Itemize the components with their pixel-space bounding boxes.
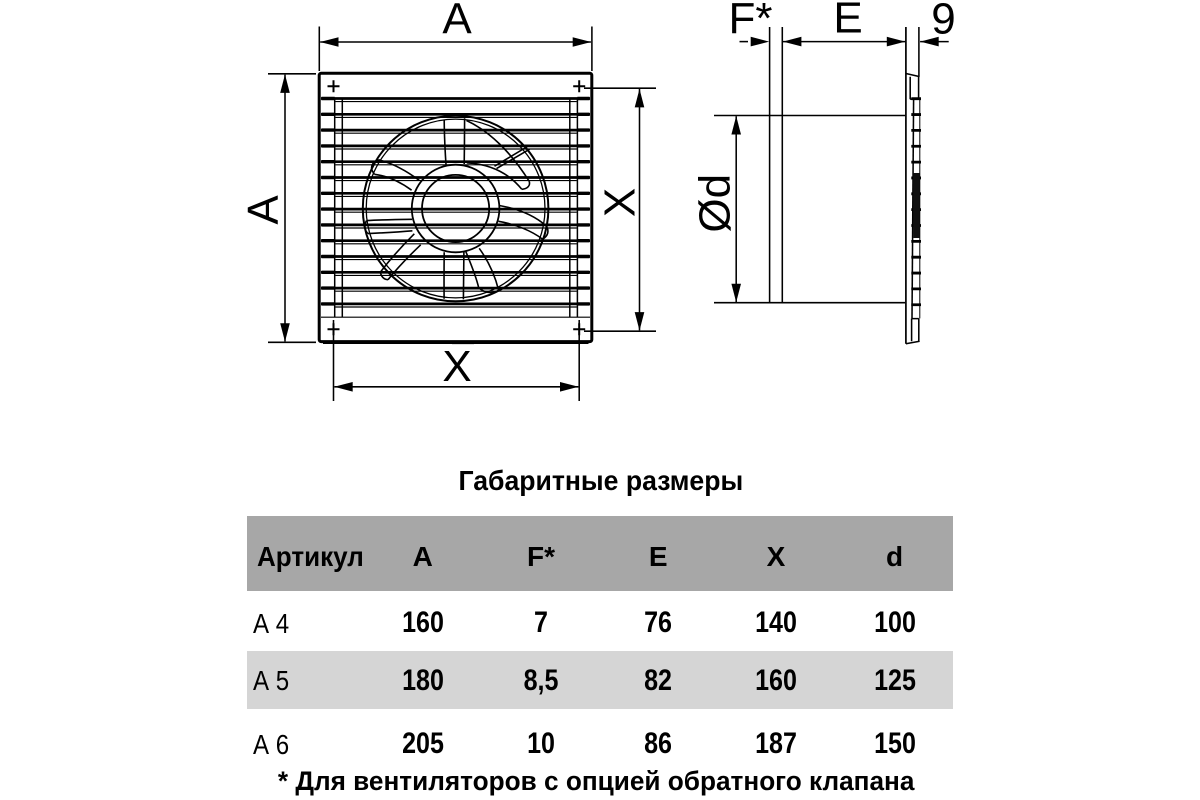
svg-text:E: E	[833, 0, 862, 43]
svg-text:A: A	[239, 195, 288, 225]
svg-text:X: X	[442, 342, 471, 391]
svg-text:Ød: Ød	[691, 174, 740, 233]
svg-text:9: 9	[931, 0, 955, 44]
svg-text:X: X	[596, 188, 645, 217]
svg-text:A: A	[442, 0, 472, 44]
svg-text:F*: F*	[729, 0, 773, 43]
